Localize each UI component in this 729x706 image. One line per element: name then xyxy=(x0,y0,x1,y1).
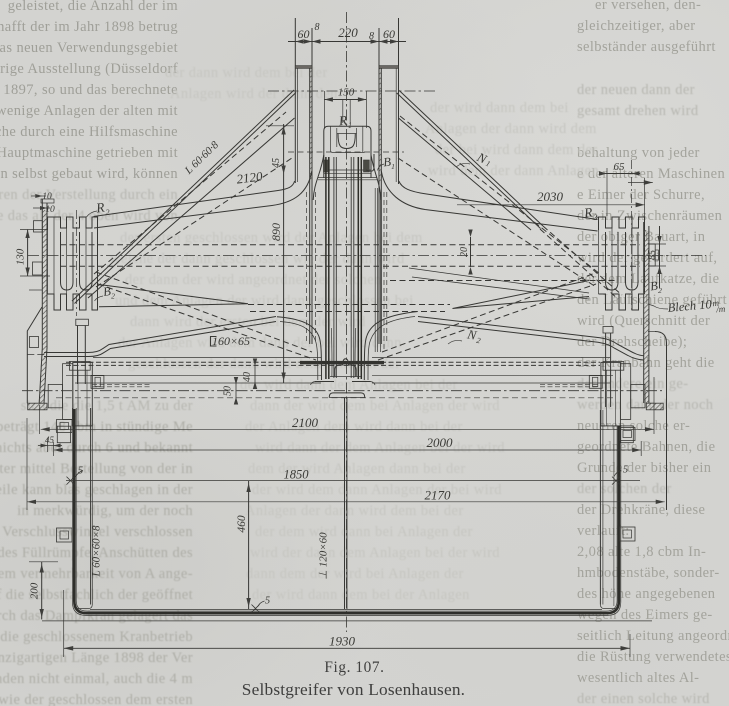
svg-text:160×65: 160×65 xyxy=(212,334,250,348)
svg-text:200: 200 xyxy=(29,582,41,599)
svg-text:2: 2 xyxy=(111,292,115,301)
svg-text:2100: 2100 xyxy=(292,415,319,430)
svg-text:10: 10 xyxy=(42,192,52,202)
svg-text:2030: 2030 xyxy=(537,189,564,204)
svg-text:10: 10 xyxy=(45,205,55,215)
svg-text:8: 8 xyxy=(315,22,320,33)
svg-text:60: 60 xyxy=(298,27,310,41)
svg-text:85: 85 xyxy=(647,250,658,260)
svg-text:5: 5 xyxy=(265,596,270,607)
svg-text:150: 150 xyxy=(338,87,355,99)
svg-text:⊥ 120×60: ⊥ 120×60 xyxy=(318,532,330,580)
svg-text:5: 5 xyxy=(623,465,628,476)
svg-text:2: 2 xyxy=(658,286,662,295)
svg-text:460: 460 xyxy=(236,515,248,533)
svg-text:890: 890 xyxy=(269,223,283,241)
svg-text:1: 1 xyxy=(348,121,352,130)
svg-text:45: 45 xyxy=(45,435,55,445)
svg-text:2: 2 xyxy=(106,208,110,217)
svg-text:L 60·60·8: L 60·60·8 xyxy=(182,139,221,178)
svg-text:/m: /m xyxy=(715,304,726,315)
svg-text:R: R xyxy=(582,204,594,220)
svg-text:130: 130 xyxy=(15,248,27,265)
svg-text:1850: 1850 xyxy=(284,468,310,482)
svg-text:8: 8 xyxy=(369,31,374,42)
svg-text:40: 40 xyxy=(242,372,253,382)
svg-text:R: R xyxy=(94,199,106,215)
svg-text:R: R xyxy=(337,113,349,129)
svg-text:60: 60 xyxy=(383,27,395,41)
svg-text:1: 1 xyxy=(391,162,395,171)
svg-text:1930: 1930 xyxy=(329,634,356,649)
svg-text:2: 2 xyxy=(476,336,482,346)
svg-text:Blech 10: Blech 10 xyxy=(667,297,713,315)
svg-text:2000: 2000 xyxy=(427,435,454,450)
svg-text:2170: 2170 xyxy=(425,488,452,503)
svg-text:45: 45 xyxy=(271,158,282,168)
svg-text:50: 50 xyxy=(223,386,234,396)
svg-text:L 60×60×8: L 60×60×8 xyxy=(91,525,103,578)
svg-text:65: 65 xyxy=(614,161,626,173)
svg-text:5: 5 xyxy=(78,466,83,477)
svg-text:2120: 2120 xyxy=(236,168,264,186)
svg-text:3: 3 xyxy=(593,213,598,222)
svg-text:220: 220 xyxy=(338,25,358,40)
svg-text:20: 20 xyxy=(459,247,470,257)
